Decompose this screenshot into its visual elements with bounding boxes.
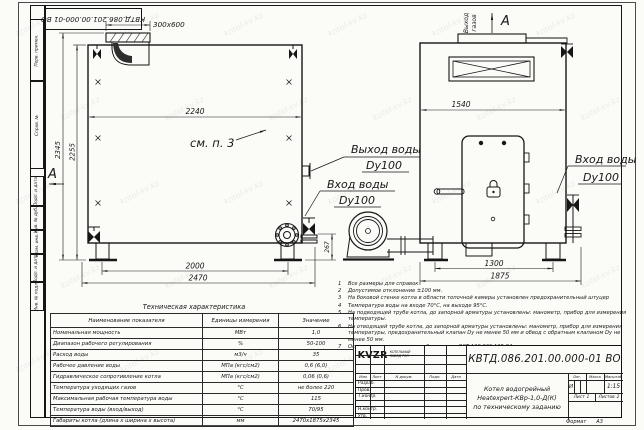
pipe-labels-right: Вход воды Dy100 [557, 153, 637, 193]
tb-sheet: Лист1 [568, 393, 595, 401]
format-label: Формат А3 [566, 419, 603, 425]
technical-notes: 1Все размеры для справок 2Допустимое отк… [336, 281, 632, 351]
spec-row: Рабочее давление водыМПа (кгс/см2)0,6 (6… [51, 361, 354, 372]
spec-row: Температура уходящих газов°Сне более 220 [51, 383, 354, 394]
note-item: 3На боковой стенке котла в области топоч… [336, 295, 632, 302]
water-in-label: Вход воды [327, 178, 389, 191]
water-inlet-valve [301, 218, 317, 243]
tb-col-data: Дата [446, 373, 466, 380]
see-item-callout: см. п. 3 [190, 130, 266, 150]
door-handle [437, 189, 464, 194]
spec-table-title: Техническая характеристика [50, 303, 338, 311]
dim-axis-height: 267 [324, 241, 331, 253]
door-hinge [524, 184, 529, 193]
door-hinge [524, 153, 529, 162]
water-outlet-stub [302, 163, 310, 179]
note-item: 4Температура воды на входе 70°С, на выхо… [336, 303, 632, 310]
title-block: Изм Лист N докум. Подп. Дата Разраб. Про… [355, 345, 622, 418]
tb-name: Котел водогрейный Heatexpert-КВр-1,0-Д(К… [466, 373, 568, 419]
boiler-leg [428, 243, 442, 259]
dim-flue-opening: 300x600 [153, 20, 185, 29]
section-marker-left: А [47, 167, 64, 184]
pipe-flange [276, 224, 299, 247]
front-inlet-pipe [565, 195, 581, 243]
tb-doc-number: КВТД.086.201.00.000-01 ВО [466, 346, 623, 373]
dim-front-total-width: 1875 [490, 272, 509, 281]
tb-col-podp: Подп. [424, 373, 446, 380]
spec-row: Диапазон рабочего регулирования%50-100 [51, 339, 354, 350]
tb-row-prov: Пров. [358, 388, 371, 393]
water-in-dn-label-right: Dy100 [583, 171, 619, 184]
tb-col-ndoc: N докум. [384, 373, 424, 380]
front-view: Выход газов А [420, 13, 581, 260]
padlock-icon [487, 181, 500, 198]
spec-table: Наименование показателя Единицы измерени… [50, 313, 354, 427]
dim-side-width: 2240 [185, 107, 204, 116]
dim-front-legs-span: 1300 [484, 259, 503, 268]
spec-header-row: Наименование показателя Единицы измерени… [51, 314, 354, 328]
tb-scale-label: Масштаб [604, 373, 623, 380]
note-item: 5На подводящей трубе котла, до запорной … [336, 310, 632, 323]
tb-row-razrab: Разраб. [358, 381, 375, 386]
tb-col-izm: Изм [356, 373, 370, 380]
drawing-sheet: { "stamp": { "doc_number": "КВТД.086.201… [0, 0, 644, 430]
tb-sheets: Листов2 [595, 393, 623, 401]
dim-body-height: 2255 [69, 143, 77, 161]
ash-box [466, 243, 492, 256]
tb-lit-label: Лит. [568, 373, 586, 380]
section-a-label: А [47, 167, 57, 182]
spec-row: Максимальная рабочая температура воды°С1… [51, 394, 354, 405]
flue-collar [106, 33, 150, 65]
dim-front-width: 1540 [451, 100, 470, 109]
note-item: 1Все размеры для справок [336, 281, 632, 288]
flue-outlet-collar [458, 34, 526, 43]
water-in-dn-label: Dy100 [339, 194, 375, 207]
furnace-door [434, 136, 529, 248]
note-item: 6На отводящей трубе котла, до запорной а… [336, 324, 632, 344]
tb-col-list: Лист [370, 373, 384, 380]
boiler-leg [546, 243, 560, 259]
tb-scale-value: 1:15 [604, 380, 623, 393]
water-out-label: Выход воды [351, 143, 421, 156]
access-panel [449, 57, 534, 81]
dim-total-length: 2470 [188, 274, 207, 283]
note-item: 2Допустимое отклонение ±100 мм. [336, 288, 632, 295]
tb-mass-label: Масса [586, 373, 604, 380]
pipe-labels-middle: Выход воды Dy100 Вход воды Dy100 [305, 143, 421, 216]
spec-row: Температура воды (вход/выход)°С70/95 [51, 405, 354, 416]
spec-row: Гидравлическое сопротивление котлаМПа (к… [51, 372, 354, 383]
air-vent-valve-icon [561, 44, 573, 58]
spec-row: Номинальная мощностьМВт1,0 [51, 328, 354, 339]
drain-valve-icon [88, 227, 100, 243]
spec-row: Расход водым3/ч35 [51, 350, 354, 361]
section-a-label-top: А [500, 14, 510, 29]
gas-out-label-1: Выход [463, 13, 470, 33]
door-hinge [524, 215, 529, 224]
dim-legs-span: 2000 [185, 262, 204, 271]
dim-total-height: 2345 [54, 141, 62, 159]
gas-out-label-2: газов [471, 14, 478, 32]
tb-row-tkontr: Т.контр. [358, 394, 377, 399]
water-out-dn-label: Dy100 [366, 159, 402, 172]
spec-table-section: Техническая характеристика Наименование … [50, 303, 338, 427]
tb-row-nkontr: Н.контр. [358, 407, 377, 412]
boiler-leg [96, 243, 109, 259]
water-in-label-right: Вход воды [575, 153, 637, 166]
spec-row: Габариты котла (длина х ширина х высота)… [51, 416, 354, 427]
tb-lit-value: И [568, 380, 574, 393]
tb-row-utv: Утв. [358, 414, 367, 419]
see-item-label: см. п. 3 [190, 136, 234, 150]
